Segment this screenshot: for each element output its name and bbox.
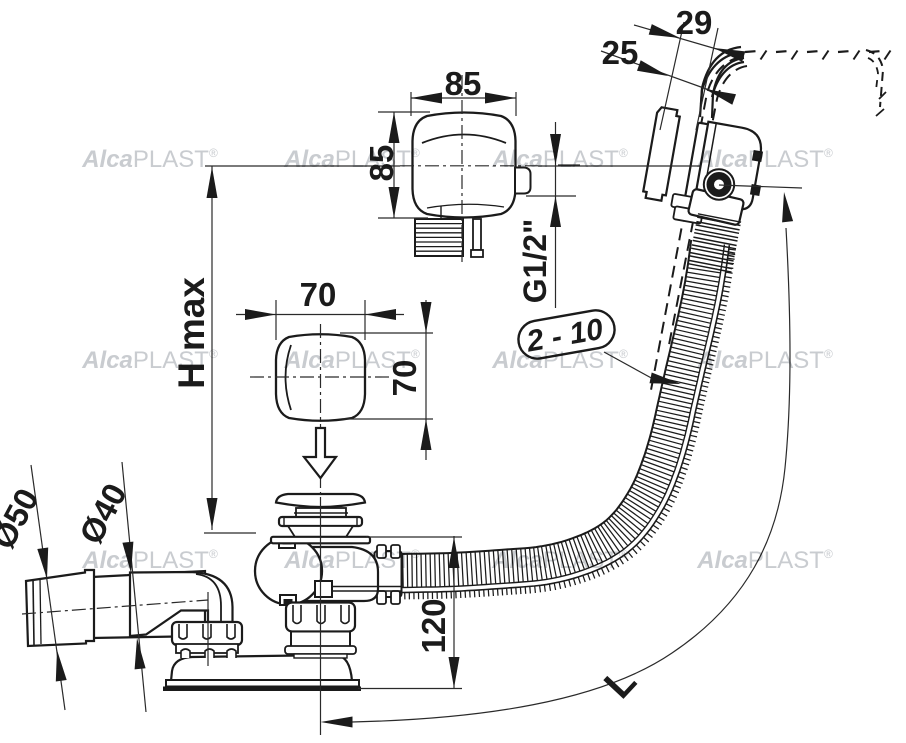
svg-text:AlcaPLAST®: AlcaPLAST® — [283, 547, 420, 574]
svg-text:AlcaPLAST®: AlcaPLAST® — [696, 547, 833, 574]
svg-text:AlcaPLAST®: AlcaPLAST® — [696, 146, 833, 173]
svg-text:AlcaPLAST®: AlcaPLAST® — [283, 146, 420, 173]
svg-text:AlcaPLAST®: AlcaPLAST® — [81, 547, 218, 574]
svg-text:25: 25 — [602, 34, 639, 71]
svg-text:AlcaPLAST®: AlcaPLAST® — [491, 347, 628, 374]
svg-text:G1/2": G1/2" — [517, 219, 553, 304]
svg-text:AlcaPLAST®: AlcaPLAST® — [81, 347, 218, 374]
svg-text:120: 120 — [415, 598, 452, 653]
svg-text:29: 29 — [676, 4, 713, 41]
svg-text:85: 85 — [445, 65, 482, 102]
svg-text:70: 70 — [300, 276, 337, 313]
svg-text:AlcaPLAST®: AlcaPLAST® — [696, 347, 833, 374]
svg-text:AlcaPLAST®: AlcaPLAST® — [81, 146, 218, 173]
svg-text:AlcaPLAST®: AlcaPLAST® — [491, 146, 628, 173]
svg-text:AlcaPLAST®: AlcaPLAST® — [283, 347, 420, 374]
svg-text:AlcaPLAST®: AlcaPLAST® — [491, 547, 628, 574]
